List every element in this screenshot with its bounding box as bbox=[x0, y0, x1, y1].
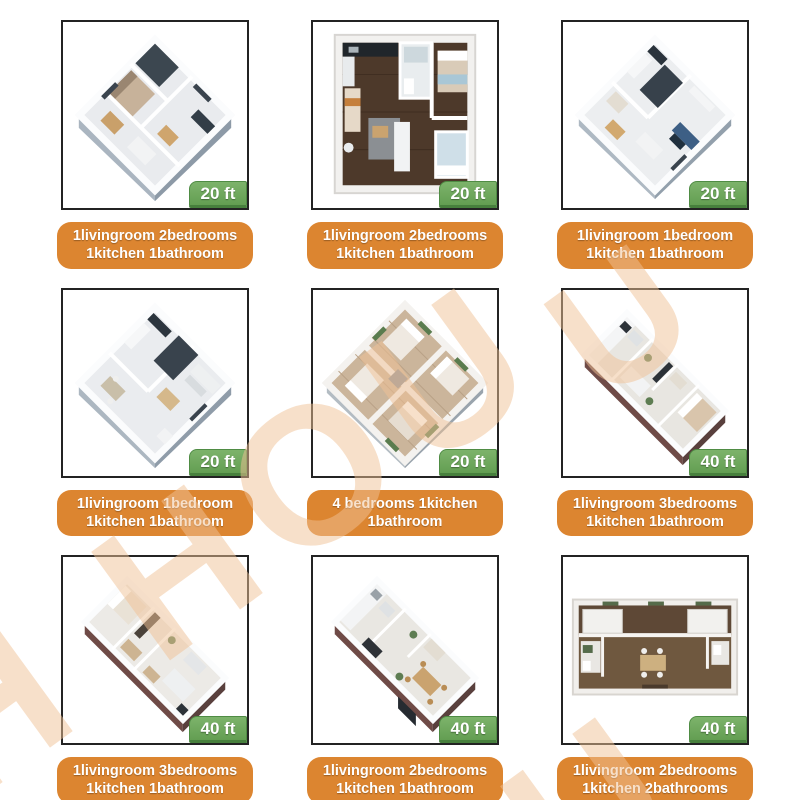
caption-line1: 1livingroom 1bedroom bbox=[563, 227, 747, 245]
caption-pill: 1livingroom 2bedrooms 1kitchen 1bathroom bbox=[307, 757, 503, 800]
caption-pill: 1livingroom 2bedrooms 1kitchen 1bathroom bbox=[57, 222, 253, 269]
caption-line2: 1kitchen 1bathroom bbox=[63, 780, 247, 798]
size-badge: 40 ft bbox=[189, 716, 247, 743]
caption-line1: 1livingroom 2bedrooms bbox=[313, 227, 497, 245]
floorplan-tile: 40 ft 1livingroom 3bedrooms 1kitchen 1ba… bbox=[61, 555, 249, 800]
caption-line2: 1kitchen 1bathroom bbox=[63, 513, 247, 531]
floorplan-iso-illustration bbox=[563, 290, 747, 476]
size-badge: 40 ft bbox=[439, 716, 497, 743]
floorplan-tile: 40 ft 1livingroom 2bedrooms 1kitchen 1ba… bbox=[311, 555, 499, 800]
floorplan-image-frame: 20 ft bbox=[61, 20, 249, 210]
size-badge: 20 ft bbox=[189, 181, 247, 208]
caption-line2: 1kitchen 1bathroom bbox=[63, 245, 247, 263]
size-badge: 40 ft bbox=[689, 449, 747, 476]
caption-line1: 1livingroom 3bedrooms bbox=[563, 495, 747, 513]
floorplan-image-frame: 40 ft bbox=[311, 555, 499, 745]
caption-line2: 1kitchen 1bathroom bbox=[563, 245, 747, 263]
caption-pill: 1livingroom 2bedrooms 1kitchen 1bathroom bbox=[307, 222, 503, 269]
caption-line1: 1livingroom 2bedrooms bbox=[313, 762, 497, 780]
floorplan-iso-illustration bbox=[63, 290, 247, 476]
floorplan-tile: 40 ft 1livingroom 3bedrooms 1kitchen 1ba… bbox=[561, 288, 749, 537]
caption-line1: 1livingroom 3bedrooms bbox=[63, 762, 247, 780]
product-image-collage: 20 ft 1livingroom 2bedrooms 1kitchen 1ba… bbox=[0, 0, 800, 800]
floorplan-tile: 20 ft 1livingroom 2bedrooms 1kitchen 1ba… bbox=[311, 20, 499, 269]
caption-line2: 1kitchen 1bathroom bbox=[313, 245, 497, 263]
floorplan-image-frame: 20 ft bbox=[561, 20, 749, 210]
caption-line1: 4 bedrooms 1kitchen bbox=[313, 495, 497, 513]
caption-line1: 1livingroom 2bedrooms bbox=[63, 227, 247, 245]
caption-line2: 1kitchen 1bathroom bbox=[563, 513, 747, 531]
caption-pill: 1livingroom 1bedroom 1kitchen 1bathroom bbox=[57, 490, 253, 537]
floorplan-iso-illustration bbox=[313, 290, 497, 476]
caption-pill: 1livingroom 2bedrooms 1kitchen 2bathroom… bbox=[557, 757, 753, 800]
caption-line2: 1kitchen 1bathroom bbox=[313, 780, 497, 798]
floorplan-tile: 20 ft 1livingroom 1bedroom 1kitchen 1bat… bbox=[61, 288, 249, 537]
caption-pill: 4 bedrooms 1kitchen 1bathroom bbox=[307, 490, 503, 537]
floorplan-grid: 20 ft 1livingroom 2bedrooms 1kitchen 1ba… bbox=[61, 20, 749, 800]
floorplan-image-frame: 40 ft bbox=[61, 555, 249, 745]
size-badge: 40 ft bbox=[689, 716, 747, 743]
size-badge: 20 ft bbox=[439, 181, 497, 208]
caption-pill: 1livingroom 3bedrooms 1kitchen 1bathroom bbox=[557, 490, 753, 537]
caption-pill: 1livingroom 3bedrooms 1kitchen 1bathroom bbox=[57, 757, 253, 800]
caption-line2: 1kitchen 2bathrooms bbox=[563, 780, 747, 798]
size-badge: 20 ft bbox=[189, 449, 247, 476]
caption-line2: 1bathroom bbox=[313, 513, 497, 531]
floorplan-tile: 20 ft 1livingroom 2bedrooms 1kitchen 1ba… bbox=[61, 20, 249, 269]
floorplan-image-frame: 40 ft bbox=[561, 288, 749, 478]
floorplan-image-frame: 20 ft bbox=[61, 288, 249, 478]
caption-line1: 1livingroom 1bedroom bbox=[63, 495, 247, 513]
floorplan-image-frame: 20 ft bbox=[311, 288, 499, 478]
floorplan-tile: 20 ft 4 bedrooms 1kitchen 1bathroom bbox=[311, 288, 499, 537]
floorplan-tile: 20 ft 1livingroom 1bedroom 1kitchen 1bat… bbox=[561, 20, 749, 269]
size-badge: 20 ft bbox=[439, 449, 497, 476]
caption-pill: 1livingroom 1bedroom 1kitchen 1bathroom bbox=[557, 222, 753, 269]
caption-line1: 1livingroom 2bedrooms bbox=[563, 762, 747, 780]
size-badge: 20 ft bbox=[689, 181, 747, 208]
floorplan-image-frame: 20 ft bbox=[311, 20, 499, 210]
floorplan-image-frame: 40 ft bbox=[561, 555, 749, 745]
floorplan-tile: 40 ft 1livingroom 2bedrooms 1kitchen 2ba… bbox=[561, 555, 749, 800]
